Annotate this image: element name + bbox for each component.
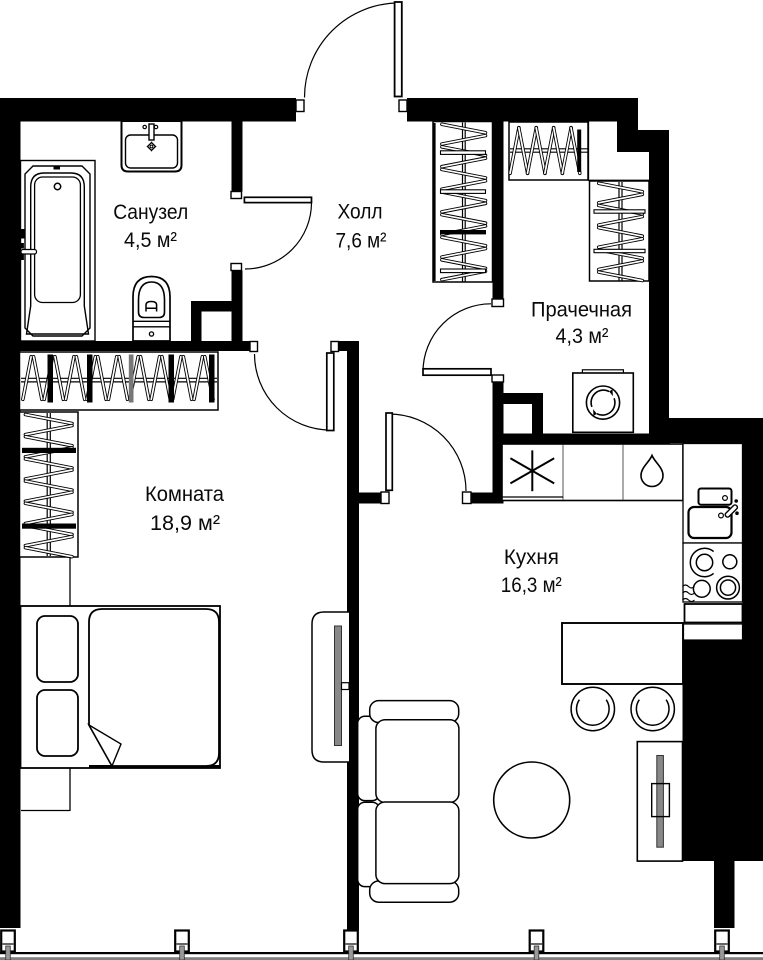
svg-text:Санузел: Санузел [113, 201, 188, 224]
svg-text:4,5 м²: 4,5 м² [124, 229, 177, 252]
svg-text:Прачечная: Прачечная [531, 299, 632, 322]
svg-text:7,6 м²: 7,6 м² [336, 230, 387, 253]
svg-text:Комната: Комната [145, 483, 224, 506]
svg-text:16,3 м²: 16,3 м² [501, 574, 562, 597]
svg-text:Холл: Холл [338, 201, 383, 224]
svg-text:Кухня: Кухня [504, 546, 559, 569]
svg-text:4,3 м²: 4,3 м² [556, 325, 609, 348]
svg-text:18,9 м²: 18,9 м² [150, 512, 220, 535]
